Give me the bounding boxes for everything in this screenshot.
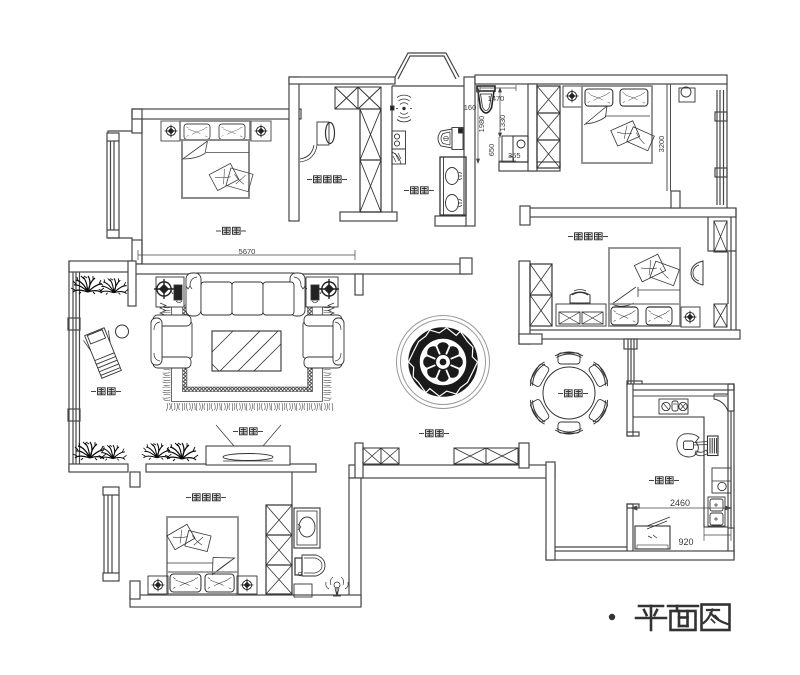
svg-text:1980: 1980	[477, 116, 486, 133]
svg-text:1330: 1330	[498, 115, 507, 132]
svg-text:160: 160	[464, 103, 477, 112]
svg-text:920: 920	[678, 537, 693, 547]
svg-text:355: 355	[508, 151, 521, 160]
svg-text:2460: 2460	[670, 498, 690, 508]
svg-text:650: 650	[487, 144, 496, 157]
svg-text:3200: 3200	[657, 136, 666, 153]
svg-text:1470: 1470	[488, 94, 505, 103]
svg-text:5670: 5670	[239, 247, 256, 256]
